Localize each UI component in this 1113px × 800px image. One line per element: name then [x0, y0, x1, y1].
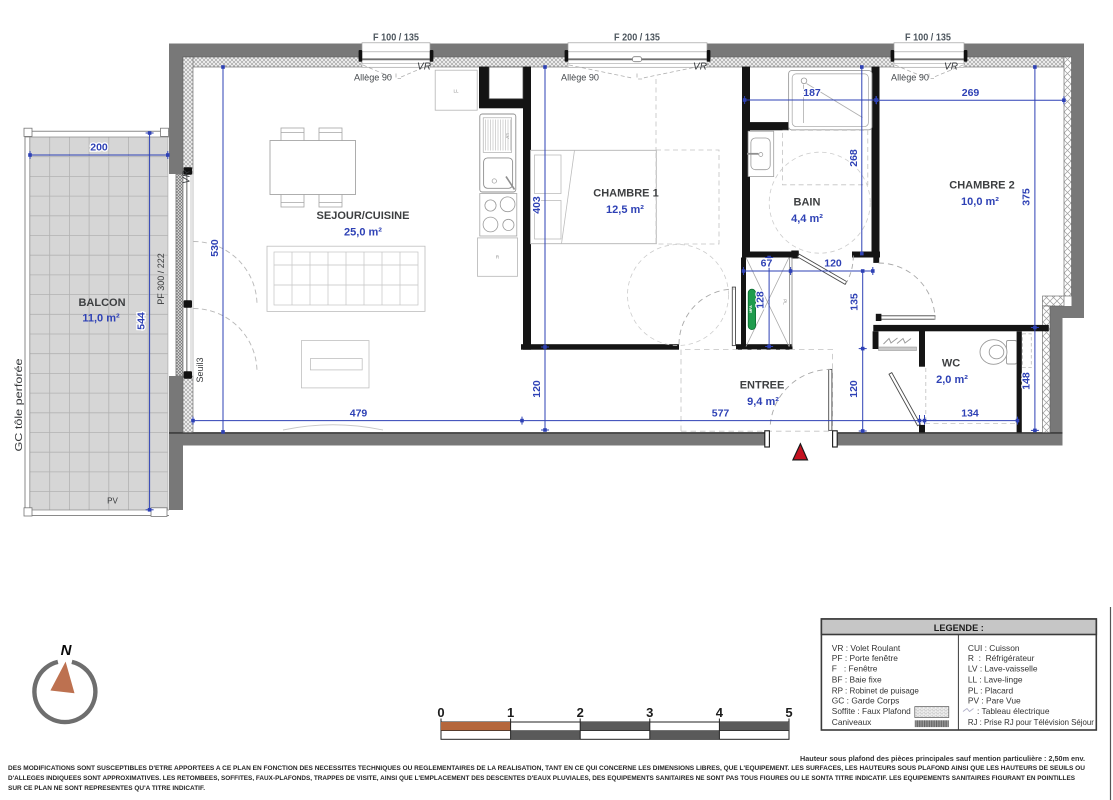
svg-text:10,0 m²: 10,0 m²: [961, 196, 999, 208]
svg-text:N: N: [61, 642, 73, 659]
svg-text:CHAMBRE 1: CHAMBRE 1: [593, 188, 658, 200]
svg-text:134: 134: [961, 408, 979, 420]
svg-text:RP : Robinet de puisage: RP : Robinet de puisage: [832, 685, 919, 695]
svg-text:LL: LL: [453, 89, 459, 94]
svg-text:Caniveaux: Caniveaux: [832, 717, 872, 727]
svg-text:LL : Lave-linge: LL : Lave-linge: [968, 674, 1023, 684]
svg-text:Hauteur sous plafond des pièce: Hauteur sous plafond des pièces principa…: [800, 754, 1085, 763]
svg-text:148: 148: [1021, 372, 1033, 390]
svg-text:BALCON: BALCON: [78, 297, 125, 309]
svg-text:PF 300 / 222: PF 300 / 222: [156, 253, 166, 305]
svg-text:Allège 90: Allège 90: [354, 73, 392, 83]
svg-text:2,0 m²: 2,0 m²: [936, 374, 968, 386]
svg-text:GC : Garde Corps: GC : Garde Corps: [832, 695, 900, 705]
svg-text:MFA: MFA: [749, 305, 753, 313]
svg-text:VR: VR: [693, 62, 707, 73]
svg-text:BAIN: BAIN: [794, 197, 821, 209]
svg-text:VR : Volet Roulant: VR : Volet Roulant: [832, 643, 901, 653]
svg-text:PF : Porte fenêtre: PF : Porte fenêtre: [832, 653, 898, 663]
svg-text:120: 120: [824, 258, 842, 270]
svg-text:544: 544: [136, 312, 148, 330]
svg-text:R : Réfrigérateur: R : Réfrigérateur: [968, 653, 1035, 663]
svg-text:F : Fenêtre: F : Fenêtre: [832, 664, 878, 674]
svg-text:4,4 m²: 4,4 m²: [791, 213, 823, 225]
svg-text:11,0 m²: 11,0 m²: [82, 313, 120, 325]
svg-text:CHAMBRE 2: CHAMBRE 2: [949, 180, 1014, 192]
svg-text:530: 530: [209, 239, 221, 257]
svg-text:Seuil3: Seuil3: [195, 357, 205, 382]
svg-text:403: 403: [531, 196, 543, 214]
svg-text:479: 479: [350, 408, 368, 420]
svg-text:PV: PV: [107, 497, 118, 506]
svg-text:SEJOUR/CUISINE: SEJOUR/CUISINE: [317, 210, 410, 222]
svg-text:ENTREE: ENTREE: [740, 380, 785, 392]
svg-text:F 100 / 135: F 100 / 135: [905, 33, 951, 44]
svg-text:120: 120: [848, 380, 860, 398]
svg-text:CUI : Cuisson: CUI : Cuisson: [968, 643, 1020, 653]
svg-text:LV: LV: [505, 133, 510, 138]
svg-text:3: 3: [646, 705, 653, 720]
svg-text:BF : Baie fixe: BF : Baie fixe: [832, 674, 882, 684]
svg-text:9,4 m²: 9,4 m²: [747, 396, 779, 408]
svg-text:VR: VR: [182, 170, 193, 184]
svg-text:SUR CE PLAN NE SONT REPRESENTE: SUR CE PLAN NE SONT REPRESENTES QU'A TIT…: [8, 785, 205, 792]
svg-text:4: 4: [716, 705, 724, 720]
svg-text:PV : Pare Vue: PV : Pare Vue: [968, 695, 1021, 705]
svg-text:F 200 / 135: F 200 / 135: [614, 33, 660, 44]
svg-text:67: 67: [761, 258, 773, 270]
svg-text:Allège 90: Allège 90: [561, 73, 599, 83]
svg-text:VR: VR: [944, 62, 958, 73]
svg-text:269: 269: [962, 87, 980, 99]
svg-text:187: 187: [803, 87, 821, 99]
svg-text:RJ : Prise RJ pour Télévision: RJ : Prise RJ pour Télévision Séjour: [968, 717, 1094, 727]
svg-text:GC tôle perforée: GC tôle perforée: [13, 358, 25, 451]
svg-text:: Tableau électrique: : Tableau électrique: [977, 706, 1050, 716]
svg-text:LV : Lave-vaisselle: LV : Lave-vaisselle: [968, 664, 1038, 674]
svg-text:D'ALLEGES INDIQUEES SONT APPRO: D'ALLEGES INDIQUEES SONT APPROXIMATIVES.…: [8, 775, 1076, 782]
svg-text:12,5 m²: 12,5 m²: [606, 204, 644, 216]
svg-text:LEGENDE :: LEGENDE :: [934, 623, 984, 633]
svg-text:Allège 90: Allège 90: [891, 73, 929, 83]
svg-text:135: 135: [849, 293, 861, 311]
svg-text:1: 1: [507, 705, 514, 720]
svg-text:PL: PL: [783, 299, 788, 305]
svg-text:25,0 m²: 25,0 m²: [344, 227, 382, 239]
svg-text:128: 128: [755, 291, 767, 309]
svg-text:0: 0: [437, 705, 444, 720]
svg-text:5: 5: [785, 705, 792, 720]
svg-text:VR: VR: [417, 62, 431, 73]
svg-text:Soffite : Faux Plafond: Soffite : Faux Plafond: [832, 706, 911, 716]
svg-text:268: 268: [848, 149, 860, 167]
svg-text:WC: WC: [942, 358, 960, 370]
svg-text:2: 2: [577, 705, 584, 720]
svg-text:DES MODIFICATIONS SONT SUSCEPT: DES MODIFICATIONS SONT SUSCEPTIBLES D'ET…: [8, 765, 1085, 772]
svg-text:120: 120: [531, 380, 543, 398]
svg-text:375: 375: [1021, 188, 1033, 206]
svg-text:F 100 / 135: F 100 / 135: [373, 33, 419, 44]
svg-text:PL : Placard: PL : Placard: [968, 685, 1014, 695]
svg-text:577: 577: [712, 408, 730, 420]
svg-text:200: 200: [90, 142, 108, 154]
